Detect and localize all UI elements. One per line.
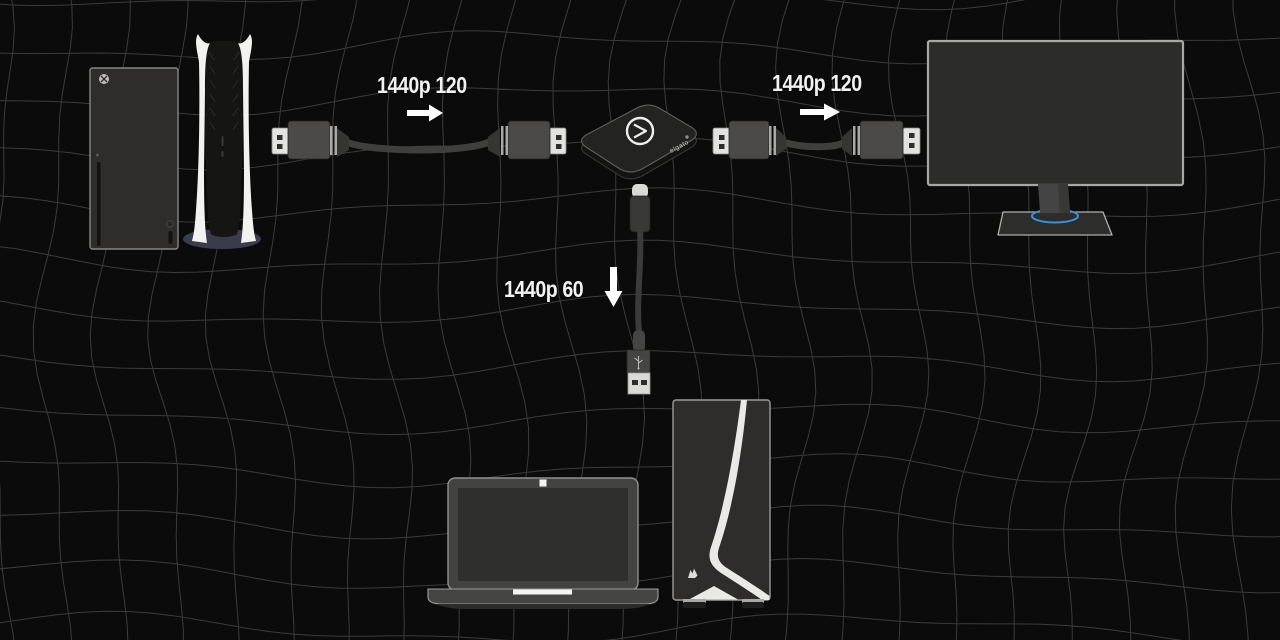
flow-label-consoles-to-capture-card: 1440p 120: [377, 72, 467, 99]
usb-a-contact: [632, 380, 638, 385]
hdmi-plug-body: [288, 121, 330, 159]
usb-a-contact: [641, 380, 647, 385]
hdmi-plug-body: [729, 121, 769, 159]
hdmi-pin-slot: [719, 135, 725, 140]
hdmi-pin-slot: [719, 144, 725, 149]
xbox-power-button: [167, 221, 173, 227]
hdmi-pin-slot: [909, 133, 915, 138]
hdmi-pin-slot: [277, 135, 283, 140]
hdmi-cable-input: [272, 121, 566, 159]
flow-label-capture-card-to-monitor: 1440p 120: [772, 70, 862, 97]
xbox-sphere-logo-icon: [99, 74, 109, 84]
webcam-icon: [540, 480, 547, 487]
desktop-pc-tower: [673, 400, 770, 608]
arrow-right-icon: [407, 105, 443, 122]
hdmi-plug-rib: [335, 126, 338, 155]
hdmi-pin-slot: [277, 144, 283, 149]
hdmi-plug-rib: [769, 126, 772, 155]
hdmi-cable-wire: [786, 143, 843, 147]
elgato-capture-card: elgato: [582, 105, 697, 179]
hdmi-plug-rib: [330, 126, 333, 155]
usb-cable: [627, 184, 650, 394]
ps5-usb-port: [222, 151, 224, 157]
laptop: [428, 478, 658, 609]
hdmi-strain-relief: [488, 128, 500, 157]
hdmi-plug-metal-tip: [713, 128, 730, 154]
laptop-lid-notch: [513, 590, 572, 595]
hdmi-pin-slot: [556, 135, 562, 140]
xbox-front-port: [169, 231, 173, 244]
xbox-disc-slot: [97, 162, 101, 246]
capture-card-led: [685, 135, 688, 138]
usb-c-plug-body: [630, 196, 650, 232]
ps5-power-button: [222, 136, 224, 146]
pc-foot: [742, 602, 764, 608]
xbox-series-x-console: [90, 68, 178, 249]
setup-diagram: elgato: [0, 0, 1280, 640]
laptop-base-underside: [436, 604, 650, 609]
hdmi-plug-rib: [853, 126, 856, 155]
usb-cable-wire: [638, 230, 640, 332]
hdmi-plug-rib: [774, 126, 777, 155]
xbox-eject-dot: [96, 154, 99, 157]
usb-a-strain-relief: [633, 330, 645, 352]
hdmi-plug-rib: [858, 126, 861, 155]
arrow-right-icon: [800, 104, 840, 121]
hdmi-plug-rib: [506, 126, 509, 155]
gaming-monitor: [928, 41, 1183, 235]
laptop-screen: [458, 488, 628, 581]
playstation-5-console: [183, 34, 261, 249]
arrow-down-icon: [605, 267, 623, 307]
diagram-canvas: elgato: [0, 0, 1280, 640]
hdmi-plug-metal-tip: [549, 128, 566, 154]
hdmi-cable-output: [713, 121, 920, 159]
hdmi-strain-relief: [842, 128, 852, 156]
hdmi-pin-slot: [556, 144, 562, 149]
hdmi-plug-body: [860, 121, 903, 159]
flow-label-capture-card-to-computer: 1440p 60: [504, 276, 583, 303]
hdmi-plug-rib: [501, 126, 504, 155]
ps5-center-body: [205, 41, 242, 238]
hdmi-plug-metal-tip: [903, 128, 920, 154]
monitor-stand-shade: [1058, 184, 1070, 213]
hdmi-plug-metal-tip: [272, 128, 289, 154]
pc-foot: [683, 602, 706, 608]
hdmi-pin-slot: [909, 143, 915, 148]
monitor-screen: [928, 41, 1183, 185]
hdmi-plug-body: [508, 121, 550, 159]
